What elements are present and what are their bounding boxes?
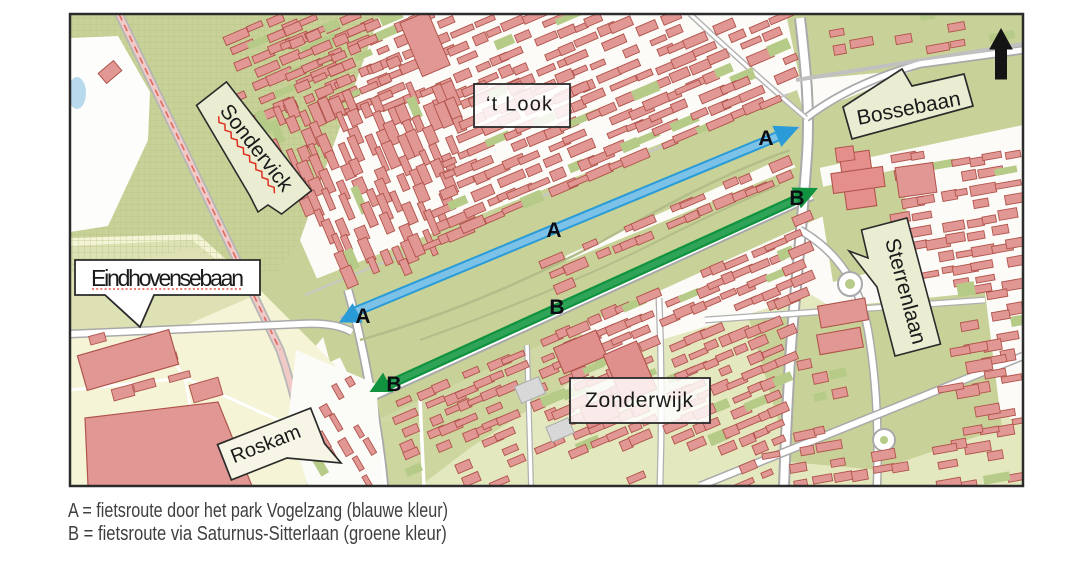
svg-text:Eindhovensebaan: Eindhovensebaan	[91, 265, 244, 291]
svg-text:B: B	[549, 296, 564, 319]
svg-text:‘t Look: ‘t Look	[486, 94, 553, 116]
svg-text:Zonderwijk: Zonderwijk	[585, 389, 694, 412]
svg-text:A: A	[355, 305, 370, 328]
svg-text:B: B	[386, 373, 401, 396]
svg-text:A: A	[546, 219, 561, 242]
svg-text:A: A	[758, 127, 773, 150]
svg-text:B: B	[789, 187, 804, 210]
